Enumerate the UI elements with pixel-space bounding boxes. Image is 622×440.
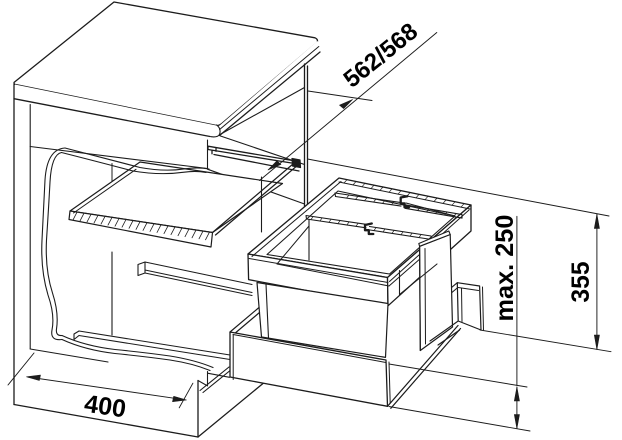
svg-text:max. 250: max. 250 — [491, 215, 519, 322]
svg-text:355: 355 — [568, 261, 595, 302]
svg-text:400: 400 — [82, 390, 127, 424]
svg-text:562/568: 562/568 — [339, 18, 424, 93]
